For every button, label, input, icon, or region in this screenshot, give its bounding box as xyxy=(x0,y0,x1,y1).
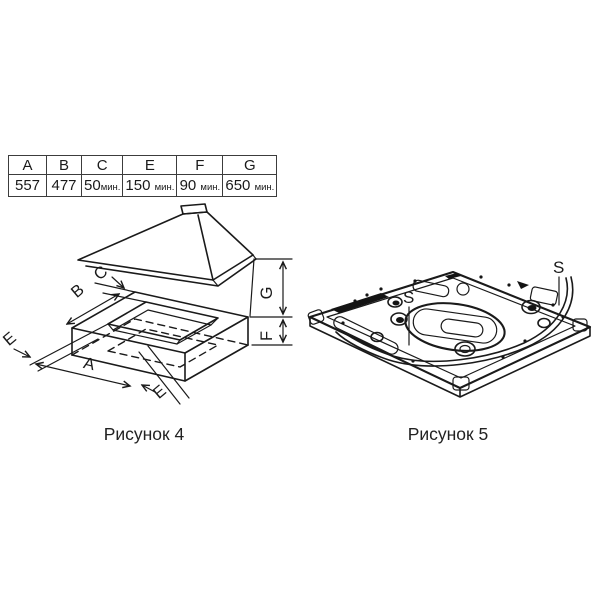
figure5-svg: S S xyxy=(295,245,595,445)
figure5-underside-drawing: S S xyxy=(295,245,595,445)
dim-label-b: B xyxy=(68,281,88,302)
table-value-row: 557 477 50мин. 150 мин. 90 мин. 650 мин. xyxy=(9,175,277,197)
table-header: E xyxy=(123,156,177,175)
value: 90 xyxy=(180,177,197,194)
table-header: C xyxy=(82,156,123,175)
figure4-caption: Рисунок 4 xyxy=(59,424,229,445)
value: 650 xyxy=(225,177,250,194)
table-header: A xyxy=(9,156,47,175)
dim-label-c: C xyxy=(90,262,111,284)
s-label-left: S xyxy=(403,288,414,307)
unit: мин. xyxy=(155,182,175,193)
dim-label-e-left: E xyxy=(0,329,20,350)
unit: мин. xyxy=(101,182,121,193)
table-cell: 50мин. xyxy=(82,175,123,197)
table-cell: 650 мин. xyxy=(223,175,277,197)
table-header: F xyxy=(177,156,223,175)
unit: мин. xyxy=(200,182,220,193)
hob-panel-details xyxy=(307,273,587,390)
dimension-letters: A B C E E G F xyxy=(0,262,276,402)
table-cell: 90 мин. xyxy=(177,175,223,197)
value: 150 xyxy=(125,177,150,194)
table-header-row: A B C E F G xyxy=(9,156,277,175)
dimension-table: A B C E F G 557 477 50мин. 150 мин. 90 м… xyxy=(8,155,277,197)
unit: мин. xyxy=(255,182,275,193)
s-callouts: S S xyxy=(403,258,564,345)
value: 477 xyxy=(51,177,76,194)
dim-label-f: F xyxy=(258,331,276,341)
value: 50 xyxy=(84,177,101,194)
figure5-caption: Рисунок 5 xyxy=(360,424,536,445)
dim-label-g: G xyxy=(258,287,276,300)
dimension-lines xyxy=(14,259,292,404)
table-header: G xyxy=(223,156,277,175)
table-cell: 150 мин. xyxy=(123,175,177,197)
figure4-cutout-drawing: A B C E E G F xyxy=(0,195,300,455)
dim-label-e-right: E xyxy=(150,382,170,403)
manual-page: A B C E F G 557 477 50мин. 150 мин. 90 м… xyxy=(0,0,600,600)
table-header: B xyxy=(47,156,82,175)
table-cell: 557 xyxy=(9,175,47,197)
figure4-svg: A B C E E G F xyxy=(0,195,300,455)
value: 557 xyxy=(15,177,40,194)
table-cell: 477 xyxy=(47,175,82,197)
s-label-right: S xyxy=(553,258,564,277)
